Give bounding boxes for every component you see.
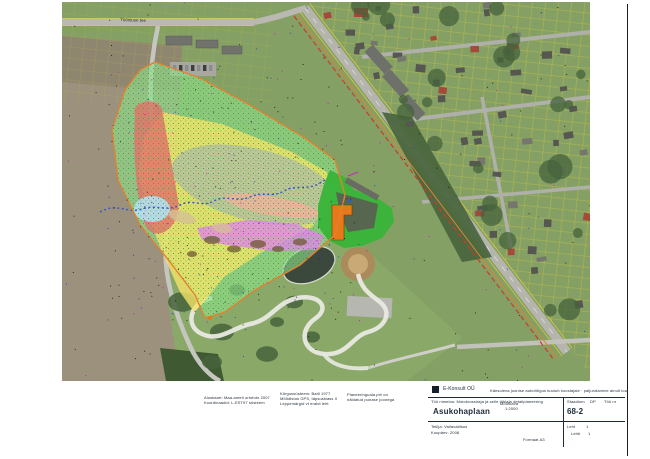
project-name: Töö nimetus: Motokrossiraja ja selle läh… (431, 399, 543, 404)
format-note: Formaat A3 (523, 437, 545, 442)
date-line: Kuupäev: 2008 (431, 430, 459, 435)
drawing-title: Asukohaplaan (433, 407, 490, 416)
company-logo-icon (432, 386, 439, 393)
company-name: E-Konsult OÜ (443, 387, 475, 392)
titleblock-divider (428, 397, 625, 398)
worknr-label: Töö nr (604, 399, 616, 404)
map-canvas: Tööstuse tee (62, 2, 590, 381)
stage-value: DP (590, 399, 596, 404)
plan-sheet: Tööstuse tee Aluskaart: Maa-ameti ortofo… (0, 0, 650, 459)
title-block: E-Konsult OÜ Käesoleva joonise autoriõig… (428, 382, 625, 447)
map-note-3: Planeeringuala piir on näidatud punase j… (347, 392, 394, 402)
client-line: Tellija: Vallavalitsus (431, 424, 467, 429)
map-note-1: Aluskaart: Maa-ameti ortofoto 2007 Koord… (204, 395, 270, 405)
stage-label: Staadium (567, 399, 585, 404)
map-area: Tööstuse tee (62, 2, 590, 381)
map-note-2: Kõrgussüsteem: Balti 1977 Mõõdistus GPS,… (280, 391, 337, 406)
sheets-value: 1 (588, 431, 590, 436)
sheet-number: 68-2 (567, 407, 583, 416)
sheet-value: 1 (586, 424, 588, 429)
scale-value: 1:2000 (505, 406, 518, 411)
titleblock-divider (428, 421, 625, 422)
sheets-label: Lehti (571, 431, 580, 436)
copyright-note: Käesoleva joonise autoriõigus kuulub koo… (490, 388, 628, 393)
street-name-label: Tööstuse tee (120, 17, 147, 23)
sheet-label: Leht (567, 424, 575, 429)
titleblock-divider (563, 397, 564, 447)
